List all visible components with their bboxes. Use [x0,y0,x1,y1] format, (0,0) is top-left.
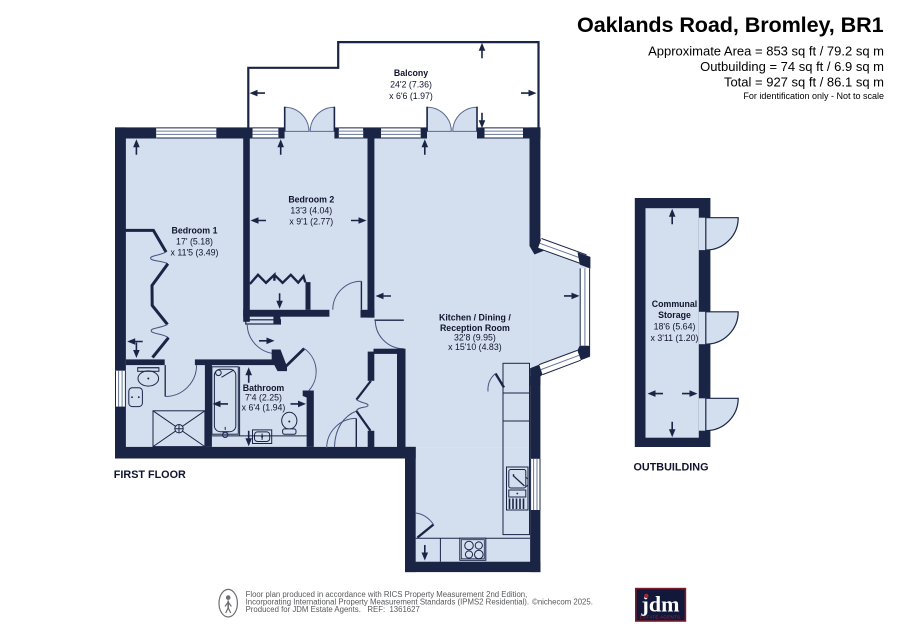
svg-text:Bedroom 1: Bedroom 1 [172,226,218,236]
svg-text:ESTATE AGENTS: ESTATE AGENTS [640,614,681,619]
svg-text:Kitchen / Dining /: Kitchen / Dining / [439,313,511,323]
svg-text:32'8 (9.95): 32'8 (9.95) [454,333,496,343]
svg-text:13'3 (4.04): 13'3 (4.04) [290,206,332,216]
svg-text:17' (5.18): 17' (5.18) [176,237,213,247]
svg-text:Total = 927 sq ft / 86.1 sq m: Total = 927 sq ft / 86.1 sq m [724,75,884,90]
svg-text:x 15'10 (4.83): x 15'10 (4.83) [448,342,502,352]
svg-text:Communal: Communal [652,299,697,309]
svg-text:Approximate Area = 853 sq ft /: Approximate Area = 853 sq ft / 79.2 sq m [648,43,884,58]
svg-text:Reception Room: Reception Room [440,323,510,333]
svg-text:x 9'1 (2.77): x 9'1 (2.77) [289,217,333,227]
svg-text:x 11'5 (3.49): x 11'5 (3.49) [171,248,219,258]
svg-text:Outbuilding = 74 sq ft / 6.9 s: Outbuilding = 74 sq ft / 6.9 sq m [700,59,884,74]
svg-text:Oaklands Road, Bromley, BR1: Oaklands Road, Bromley, BR1 [577,12,884,37]
svg-text:x 6'6 (1.97): x 6'6 (1.97) [389,91,433,101]
svg-text:Balcony: Balcony [394,68,428,78]
svg-text:Produced for JDM Estate Agents: Produced for JDM Estate Agents. REF: 136… [246,605,420,614]
svg-text:Storage: Storage [658,310,691,320]
svg-text:18'6 (5.64): 18'6 (5.64) [654,322,696,332]
svg-text:24'2 (7.36): 24'2 (7.36) [390,80,432,90]
svg-text:FIRST FLOOR: FIRST FLOOR [114,469,186,481]
svg-text:x 6'4 (1.94): x 6'4 (1.94) [242,402,286,412]
svg-text:7'4 (2.25): 7'4 (2.25) [245,393,282,403]
svg-text:x 3'11 (1.20): x 3'11 (1.20) [651,333,699,343]
svg-text:OUTBUILDING: OUTBUILDING [634,462,709,474]
svg-text:Bedroom 2: Bedroom 2 [288,195,334,205]
svg-text:For identification only - Not: For identification only - Not to scale [743,91,884,101]
svg-text:Bathroom: Bathroom [243,383,285,393]
